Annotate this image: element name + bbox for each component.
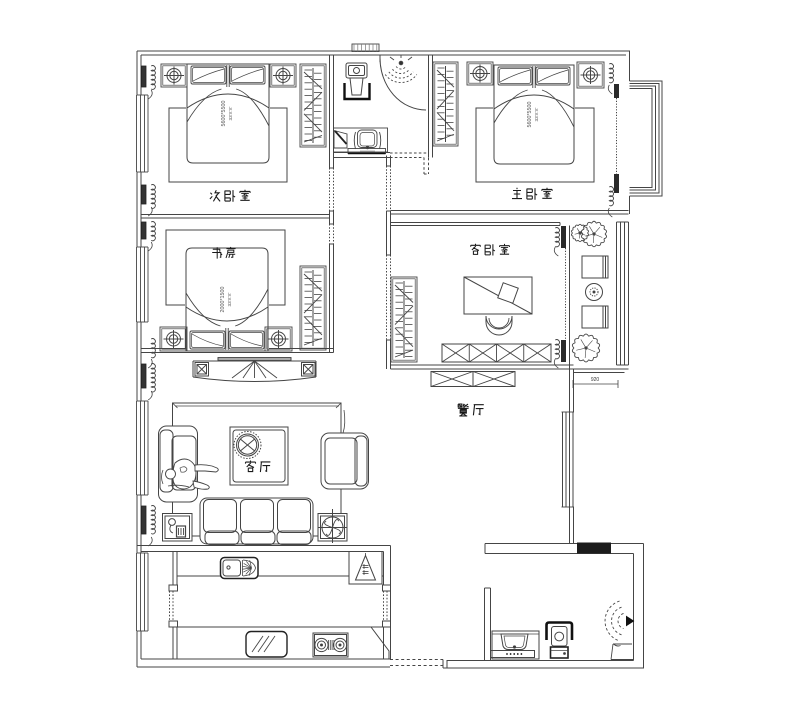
svg-text:33'X'X': 33'X'X' (228, 106, 233, 120)
svg-text:33'X'X': 33'X'X' (227, 292, 232, 306)
svg-text:33'X'X': 33'X'X' (534, 107, 539, 121)
svg-text:5600*5500: 5600*5500 (221, 100, 227, 126)
svg-text:920: 920 (591, 377, 600, 383)
svg-text:5600*5500: 5600*5500 (527, 101, 533, 127)
svg-text:2000*1500: 2000*1500 (220, 286, 226, 312)
